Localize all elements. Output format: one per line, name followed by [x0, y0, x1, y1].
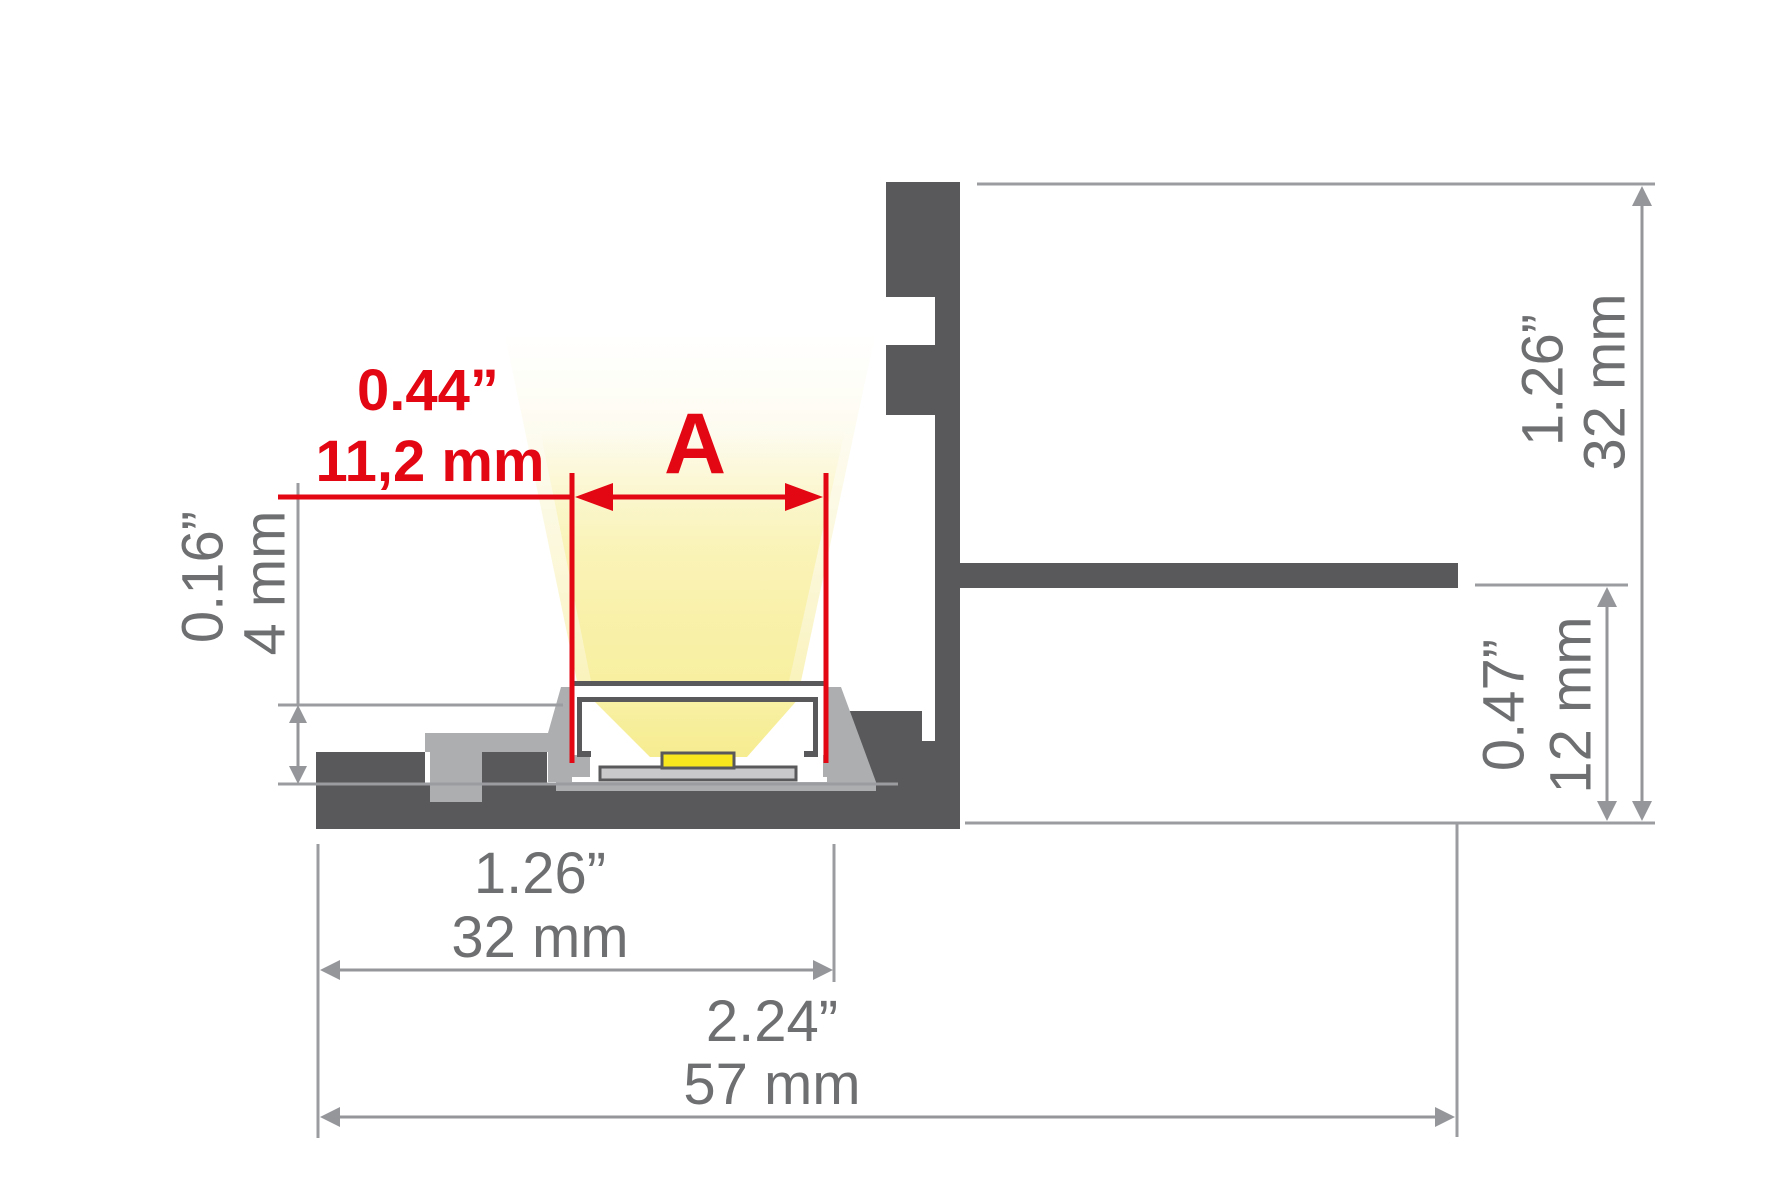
diffuser-inner-edge [577, 697, 818, 702]
profile-dimension-drawing: 0.44” 11,2 mm A 0.16” 4 mm 1.26” 32 mm 2… [0, 0, 1778, 1200]
led-chip [662, 753, 734, 768]
diffuser-hook-right [804, 751, 818, 757]
label-profile-height-inches: 1.26” [1510, 314, 1575, 446]
label-aperture-mm: 11,2 mm [316, 429, 545, 494]
label-inner-width-inches: 1.26” [474, 841, 606, 906]
profile-extrusion [316, 182, 1458, 829]
dim-profile-height [1632, 186, 1652, 821]
diffuser-leg-left [577, 697, 582, 757]
extension-lines [278, 184, 1655, 1138]
dim-recess-depth [289, 705, 307, 784]
diffuser-top-edge [572, 681, 826, 686]
diffuser-hook-left [577, 751, 591, 757]
label-aperture-symbol: A [664, 396, 726, 492]
label-total-width-inches: 2.24” [706, 989, 838, 1054]
label-recess-inches: 0.16” [170, 511, 235, 643]
label-aperture-inches: 0.44” [357, 358, 499, 423]
label-recess-mm: 4 mm [232, 511, 297, 656]
label-profile-height-mm: 32 mm [1572, 293, 1637, 470]
diffuser-leg-right [813, 697, 818, 757]
label-flange-offset-mm: 12 mm [1538, 616, 1603, 793]
label-total-width-mm: 57 mm [683, 1052, 860, 1117]
beam-below-diffuser [590, 697, 800, 757]
label-flange-offset-inches: 0.47” [1471, 639, 1536, 771]
label-inner-width-mm: 32 mm [451, 905, 628, 970]
diffuser-body [572, 686, 826, 697]
dim-total-width [320, 1107, 1455, 1127]
cross-section-canvas: 0.44” 11,2 mm A 0.16” 4 mm 1.26” 32 mm 2… [0, 0, 1778, 1200]
